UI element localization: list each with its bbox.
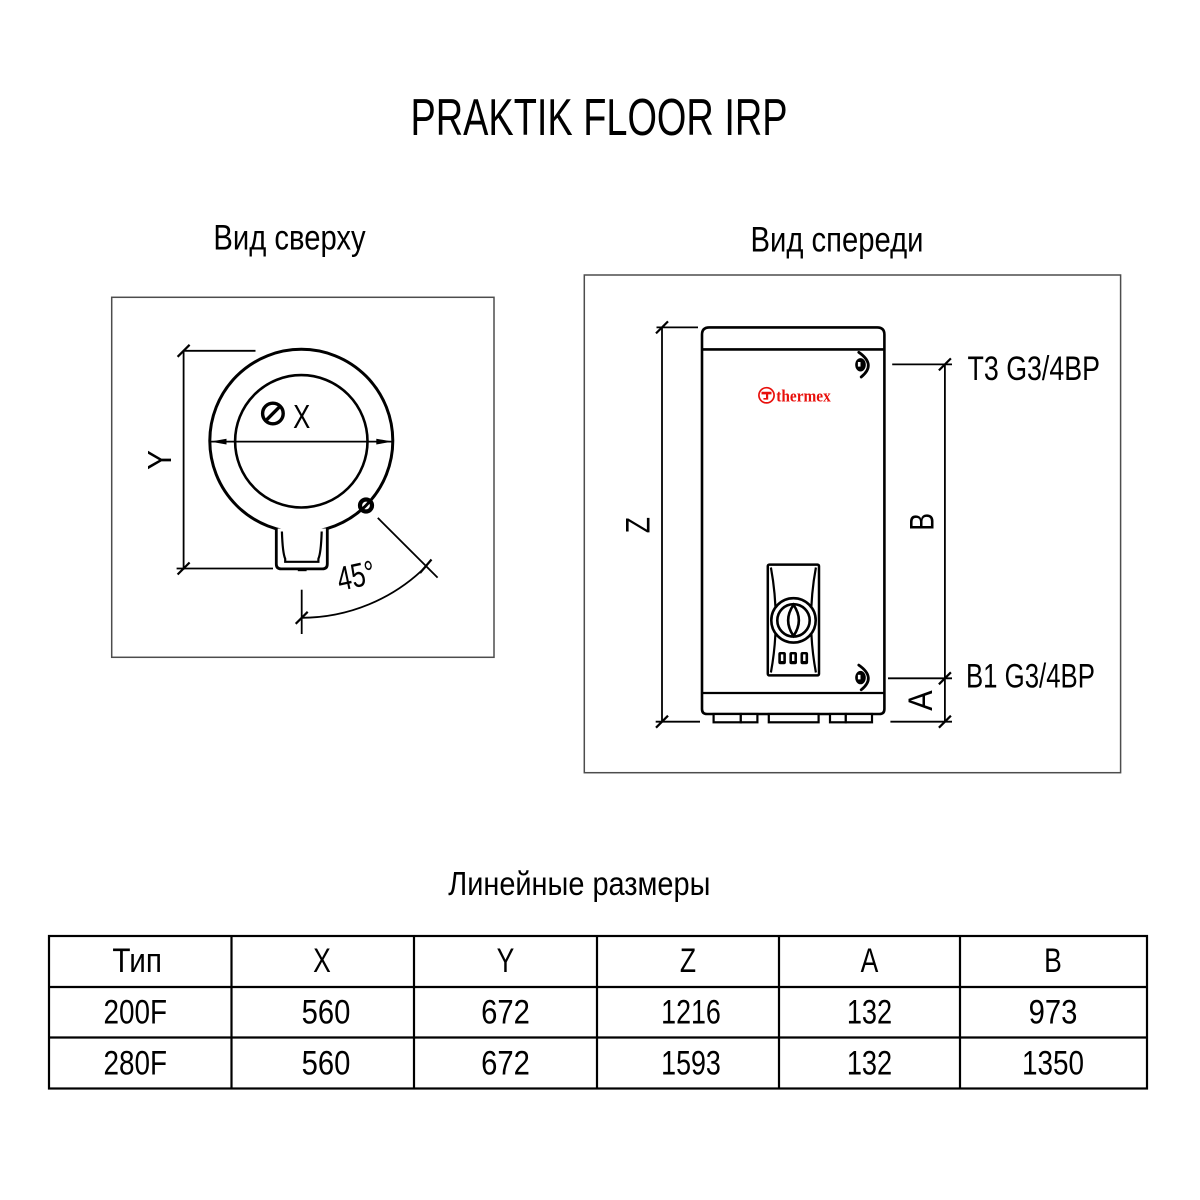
- svg-text:B: B: [1044, 942, 1062, 980]
- svg-text:200F: 200F: [104, 993, 168, 1031]
- svg-text:Z: Z: [680, 942, 696, 980]
- svg-text:Z: Z: [619, 517, 657, 533]
- svg-text:132: 132: [847, 1043, 892, 1082]
- svg-text:Т3 G3/4ВР: Т3 G3/4ВР: [968, 350, 1100, 388]
- svg-text:1216: 1216: [661, 994, 721, 1032]
- svg-text:672: 672: [481, 1043, 530, 1082]
- svg-text:Y: Y: [497, 942, 515, 980]
- svg-text:X: X: [293, 399, 310, 436]
- svg-text:В1 G3/4ВР: В1 G3/4ВР: [966, 658, 1095, 695]
- svg-text:B: B: [903, 513, 941, 531]
- svg-text:Тип: Тип: [112, 941, 162, 979]
- svg-text:45°: 45°: [334, 554, 379, 599]
- svg-text:Вид спереди: Вид спереди: [750, 220, 923, 259]
- svg-text:132: 132: [847, 993, 892, 1032]
- svg-text:973: 973: [1029, 993, 1078, 1032]
- svg-text:PRAKTIK FLOOR IRP: PRAKTIK FLOOR IRP: [410, 88, 787, 146]
- svg-text:1350: 1350: [1022, 1044, 1084, 1082]
- svg-text:Y: Y: [141, 450, 178, 470]
- svg-text:Линейные размеры: Линейные размеры: [448, 865, 710, 902]
- svg-text:A: A: [861, 942, 879, 980]
- svg-text:A: A: [902, 690, 940, 711]
- svg-text:560: 560: [302, 993, 351, 1032]
- svg-text:1593: 1593: [661, 1044, 721, 1082]
- svg-text:thermex: thermex: [776, 388, 831, 406]
- svg-text:280F: 280F: [104, 1044, 168, 1082]
- svg-text:Вид сверху: Вид сверху: [213, 218, 366, 257]
- svg-text:560: 560: [302, 1043, 351, 1082]
- svg-text:672: 672: [481, 993, 530, 1032]
- svg-text:X: X: [313, 942, 331, 980]
